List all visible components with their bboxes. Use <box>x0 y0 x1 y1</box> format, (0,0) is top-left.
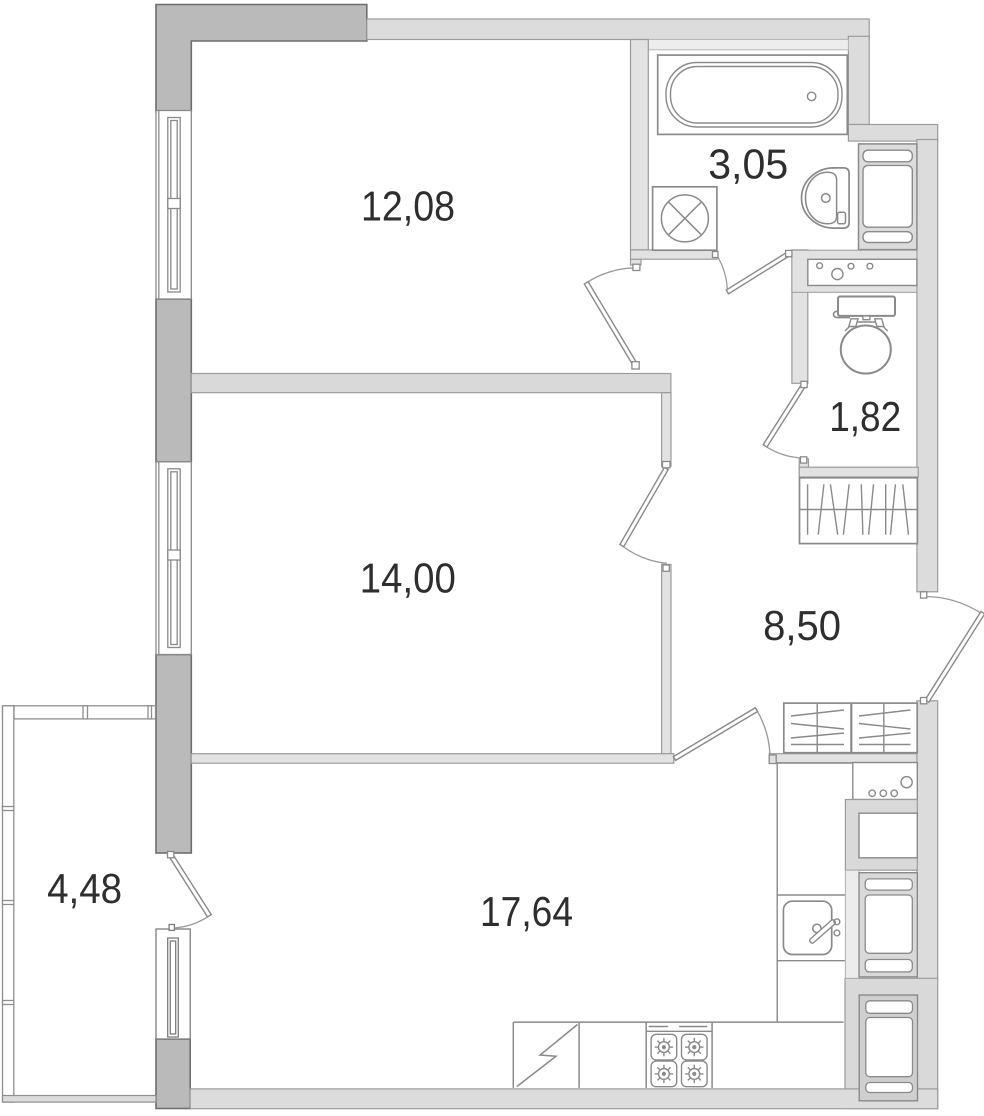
svg-text:3,05: 3,05 <box>708 141 788 188</box>
svg-text:17,64: 17,64 <box>480 888 573 935</box>
svg-text:8,50: 8,50 <box>763 602 841 649</box>
svg-text:12,08: 12,08 <box>361 183 455 230</box>
svg-text:14,00: 14,00 <box>360 555 456 602</box>
svg-text:1,82: 1,82 <box>829 393 901 440</box>
svg-text:4,48: 4,48 <box>47 865 122 912</box>
